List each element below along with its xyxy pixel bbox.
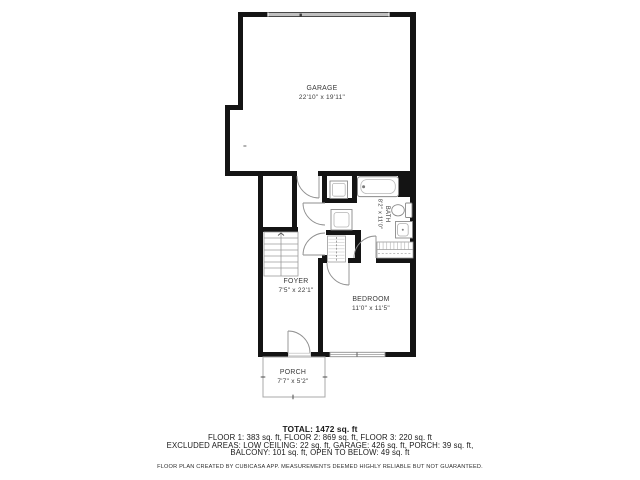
- floor-plan-canvas: GARAGE 22'10" x 19'11" BATH 8'2" x 11'0"…: [0, 0, 640, 480]
- front-door: [288, 331, 310, 353]
- foyer-dims: 7'5" x 22'1": [278, 287, 313, 294]
- window: [330, 352, 385, 356]
- washer-icon: [330, 181, 348, 199]
- garage-entry-door: [297, 176, 319, 198]
- garage-door: [267, 12, 389, 16]
- bath-label: BATH: [384, 206, 390, 223]
- excluded-areas-line2: BALCONY: 101 sq. ft, OPEN TO BELOW: 49 s…: [0, 449, 640, 457]
- bedroom-label: BEDROOM: [352, 296, 389, 303]
- bedroom-dims: 11'0" x 11'5": [352, 305, 390, 312]
- toilet-icon: [392, 203, 412, 218]
- porch-label: PORCH: [280, 369, 306, 376]
- bath-dims: 8'2" x 11'0": [377, 199, 383, 230]
- sink-icon: [396, 222, 413, 239]
- dryer-icon: [331, 210, 352, 231]
- closet-hatch: [328, 236, 346, 262]
- disclaimer-text: FLOOR PLAN CREATED BY CUBICASA APP. MEAS…: [0, 464, 640, 470]
- staircase: [264, 232, 298, 276]
- closet-rod: [377, 242, 413, 258]
- garage-dims: 22'10" x 19'11": [299, 94, 346, 101]
- area-summary: TOTAL: 1472 sq. ft FLOOR 1: 383 sq. ft, …: [0, 425, 640, 470]
- garage-label: GARAGE: [307, 85, 338, 92]
- laundry-closet-doors: [303, 203, 325, 255]
- foyer-label: FOYER: [284, 278, 309, 285]
- bathtub-icon: [358, 177, 399, 197]
- porch-dims: 7'7" x 5'2": [277, 378, 309, 385]
- bedroom-door: [327, 263, 349, 285]
- front-door-threshold: [289, 353, 311, 356]
